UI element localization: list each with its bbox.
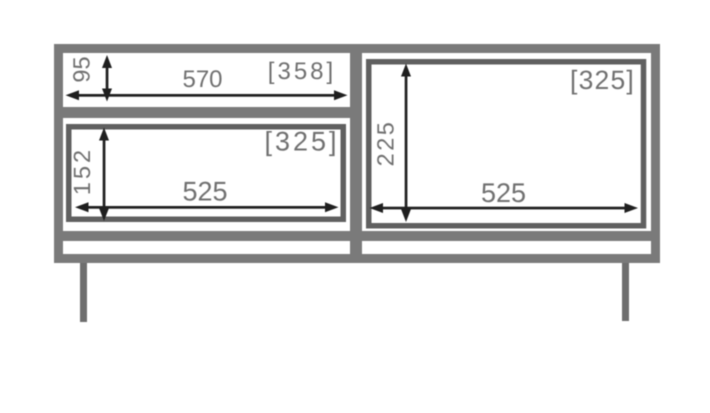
svg-text:225: 225 (373, 120, 399, 167)
svg-text:[358]: [358] (268, 58, 336, 85)
svg-text:[325]: [325] (264, 127, 339, 157)
svg-text:152: 152 (69, 147, 95, 195)
svg-text:[325]: [325] (570, 65, 635, 95)
svg-text:95: 95 (69, 56, 95, 82)
svg-text:525: 525 (182, 177, 227, 207)
svg-text:525: 525 (481, 178, 526, 208)
svg-text:570: 570 (182, 66, 222, 93)
